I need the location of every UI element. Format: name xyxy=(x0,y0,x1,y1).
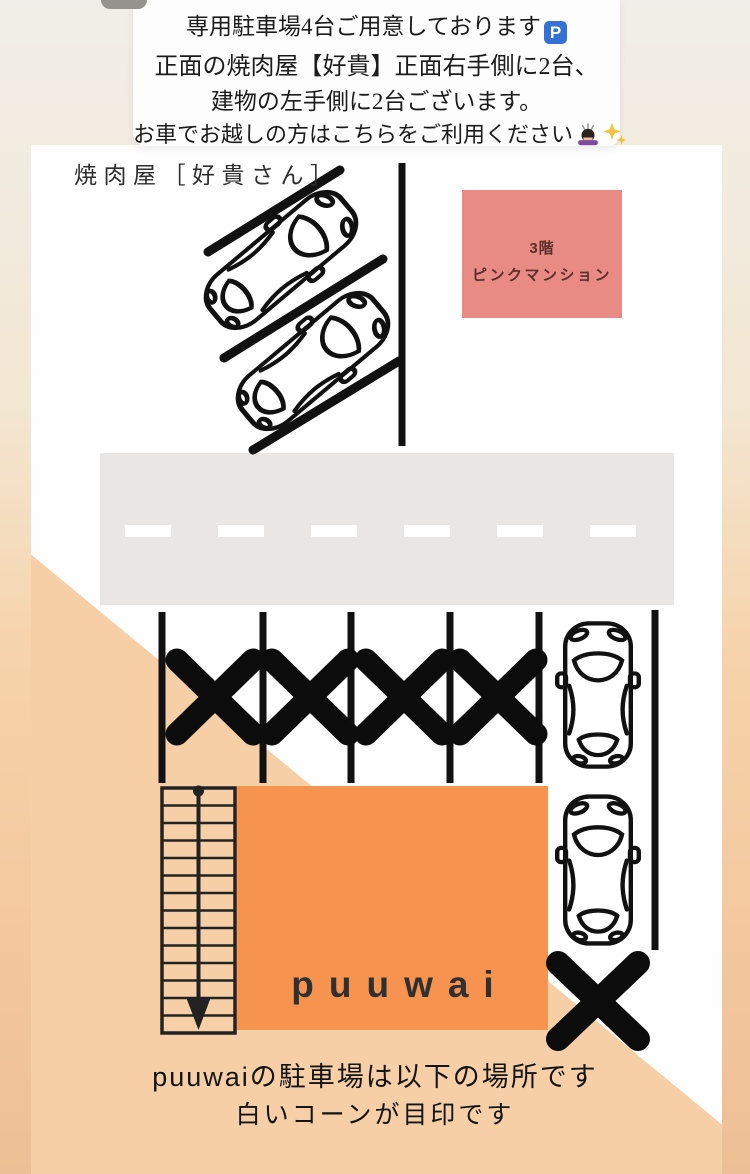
notice-line-4-text: お車でお越しの方はこちらをご利用ください xyxy=(133,122,573,147)
footer-caption-2: 白いコーンが目印です xyxy=(0,1095,750,1131)
story-canvas: 3階 ピンクマンション puuwai 焼肉屋［好貴さん］ xyxy=(0,0,750,1174)
road xyxy=(100,453,674,605)
footer-caption-1: puuwaiの駐車場は以下の場所です xyxy=(0,1055,750,1094)
parking-sign-icon: P xyxy=(544,21,567,44)
parking-notice-card: 専用駐車場4台ご用意しておりますP 正面の焼肉屋【好貴】正面右手側に2台、 建物… xyxy=(133,0,620,146)
notice-line-2: 正面の焼肉屋【好貴】正面右手側に2台、 xyxy=(133,52,620,82)
yakiniku-shop-label: 焼肉屋［好貴さん］ xyxy=(74,156,340,190)
notice-line-3: 建物の左手側に2台ございます。 xyxy=(133,88,620,117)
pink-mansion-floor: 3階 xyxy=(462,237,622,258)
sparkles-icon xyxy=(603,122,627,153)
puuwai-label: puuwai xyxy=(237,964,548,1006)
notice-line-1: 専用駐車場4台ご用意しておりますP xyxy=(133,13,620,44)
notice-line-4: お車でお越しの方はこちらをご利用ください xyxy=(133,121,620,153)
bowing-person-icon xyxy=(575,122,601,153)
puuwai-building-block: puuwai xyxy=(237,786,548,1030)
camera-notch-tab xyxy=(101,0,147,9)
notice-line-1-text: 専用駐車場4台ご用意しております xyxy=(186,14,541,39)
pink-mansion-name: ピンクマンション xyxy=(462,264,622,285)
pink-mansion-block: 3階 ピンクマンション xyxy=(462,190,622,318)
